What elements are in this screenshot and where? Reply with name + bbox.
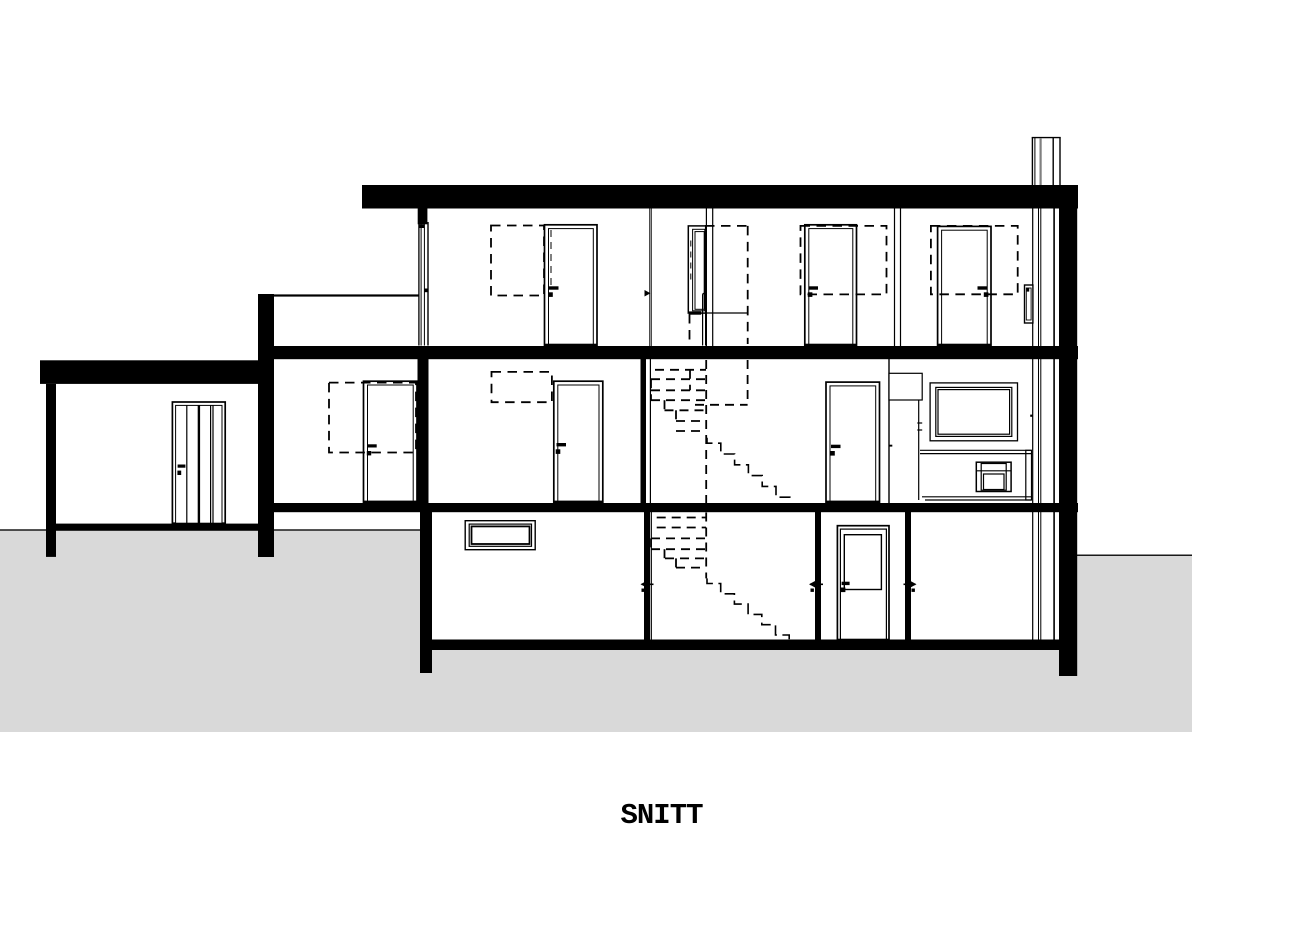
- svg-text:SNITT: SNITT: [621, 799, 704, 832]
